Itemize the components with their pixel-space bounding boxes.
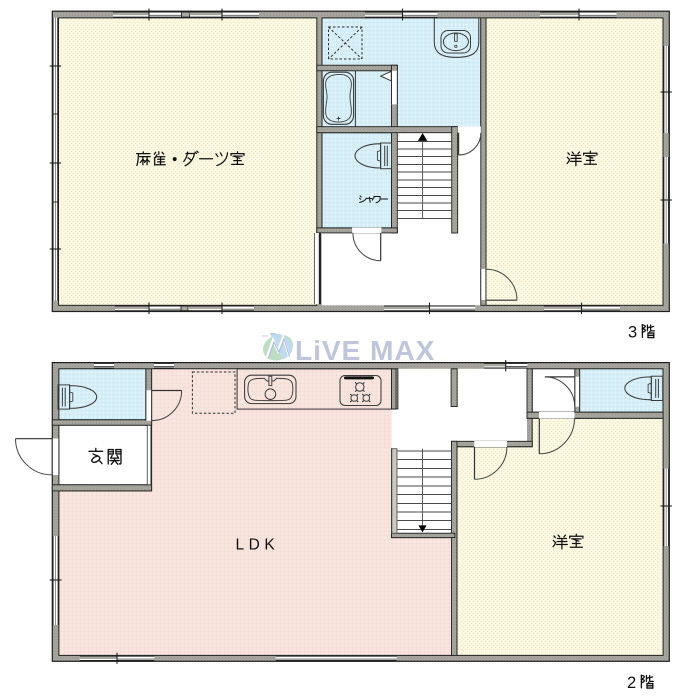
- svg-text:3: 3: [628, 324, 637, 342]
- svg-text:2: 2: [627, 674, 636, 692]
- svg-text:LiVE MAX: LiVE MAX: [295, 334, 435, 366]
- svg-text:LDK: LDK: [236, 537, 280, 554]
